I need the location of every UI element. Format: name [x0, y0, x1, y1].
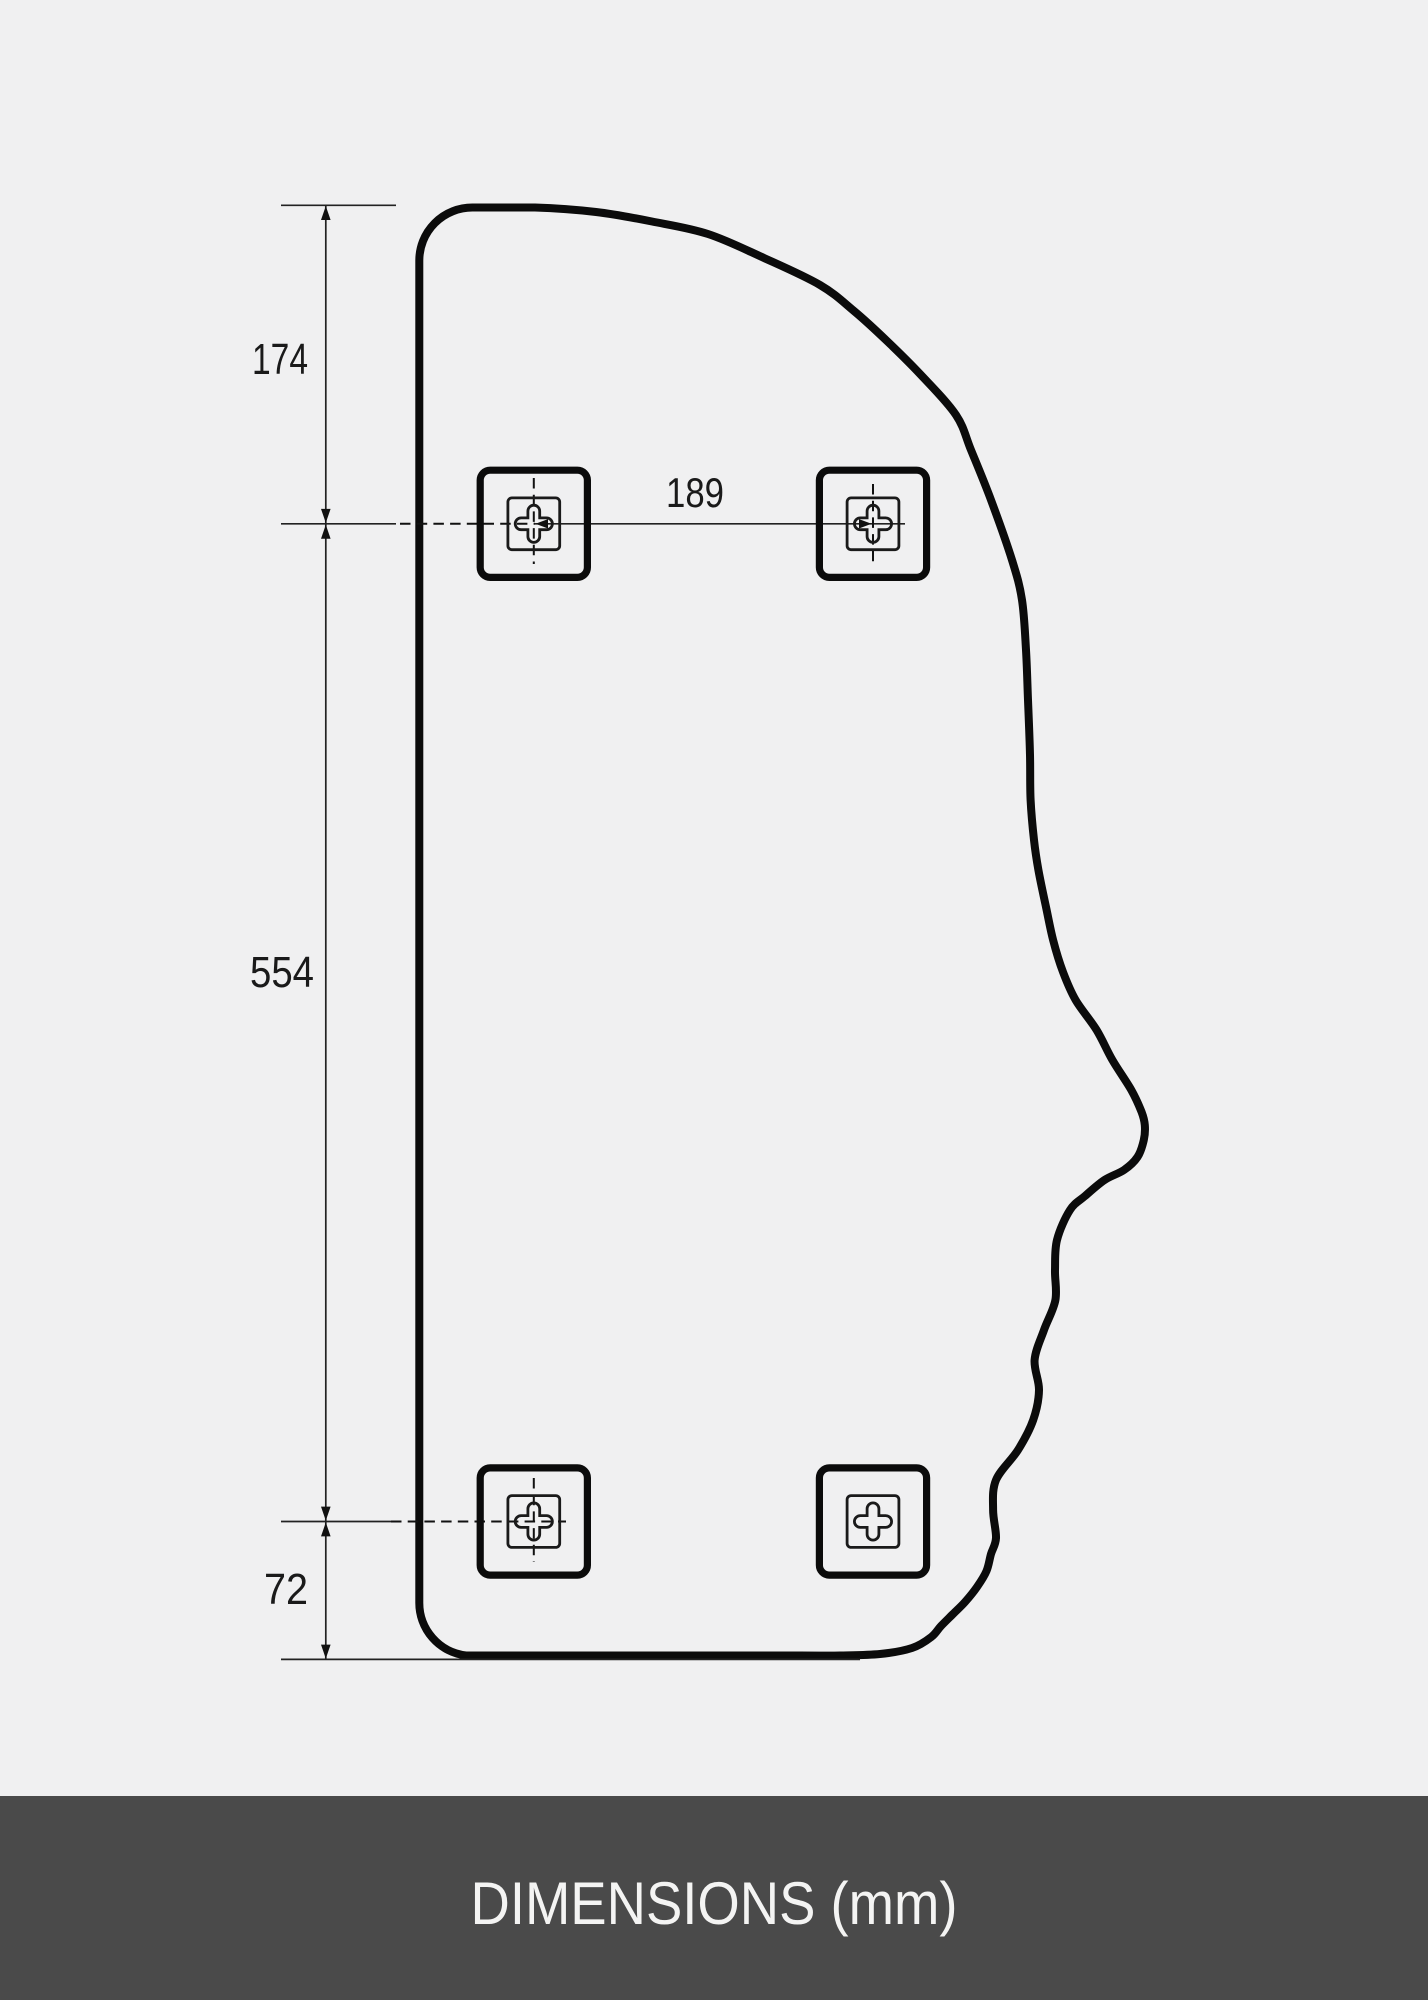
svg-text:174: 174 [252, 335, 308, 384]
svg-text:554: 554 [250, 948, 314, 997]
svg-text:72: 72 [264, 1565, 308, 1614]
svg-text:DIMENSIONS (mm): DIMENSIONS (mm) [471, 1870, 958, 1937]
svg-text:189: 189 [666, 469, 724, 516]
